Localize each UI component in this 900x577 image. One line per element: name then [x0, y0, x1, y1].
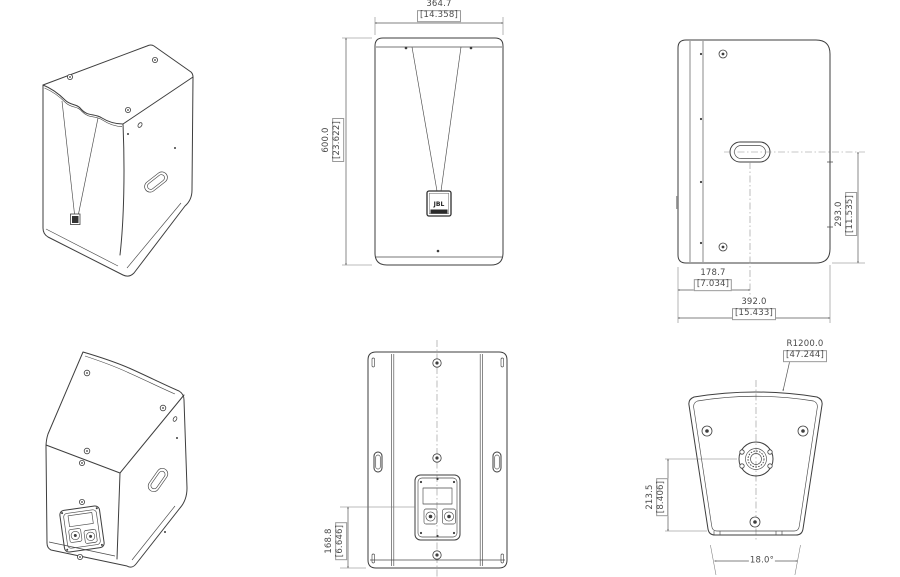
rear-connector-panel: [415, 475, 460, 540]
front-logo-badge: JBL: [427, 191, 451, 216]
side-cabinet: [677, 40, 833, 263]
dim-side-handle-height: 293.0 [11.535]: [835, 192, 857, 236]
dim-bottom-wedge-angle: 18.0°: [749, 556, 775, 565]
dim-side-handle-height-inch: [11.535]: [846, 192, 857, 236]
dim-side-handle-setback: 178.7 [7.034]: [694, 269, 732, 291]
dim-rear-connector-height: 168.8 [6.646]: [325, 522, 347, 560]
iso-rear-screws: [77, 370, 178, 559]
dim-bottom-socket-to-rear-inch: [8.406]: [657, 478, 668, 516]
iso-rear-handle: [146, 466, 170, 494]
dim-bottom-front-radius-mm: R1200.0: [785, 340, 824, 349]
bottom-view: [630, 335, 900, 577]
iso-front-view: [15, 30, 225, 270]
dim-side-handle-height-mm: 293.0: [835, 200, 844, 227]
iso-front-screws: [67, 57, 176, 149]
bottom-screws: [702, 426, 808, 527]
dim-rear-connector-height-mm: 168.8: [325, 527, 334, 554]
front-view: JBL: [320, 0, 530, 332]
iso-front-v-grille: [62, 101, 98, 214]
dim-front-height-inch: [23.622]: [333, 118, 344, 162]
dim-rear-connector-height-inch: [6.646]: [336, 522, 347, 560]
side-view: [640, 0, 900, 332]
rear-dim-lines: [340, 507, 415, 568]
side-handle: [730, 142, 770, 162]
logo-strip: [431, 210, 448, 214]
dim-bottom-socket-to-rear: 213.5 [8.406]: [646, 478, 668, 516]
jbl-logo-text: JBL: [433, 201, 445, 208]
bottom-cabinet: [689, 392, 822, 535]
dim-front-width-inch: [14.358]: [417, 11, 461, 22]
dim-side-depth: 392.0 [15.433]: [732, 298, 776, 320]
iso-rear-view: [15, 330, 225, 577]
iso-front-handle: [142, 170, 169, 195]
dim-bottom-wedge-angle-value: 18.0°: [749, 556, 775, 565]
iso-rear-cabinet: [46, 352, 187, 567]
dim-front-height: 600.0 [23.622]: [322, 118, 344, 162]
dim-bottom-front-radius-inch: [47.244]: [783, 351, 827, 362]
iso-front-logo-badge: [71, 214, 81, 225]
dim-front-width: 364.7 [14.358]: [417, 0, 461, 22]
iso-front-cabinet: [43, 45, 193, 276]
dim-bottom-front-radius: R1200.0 [47.244]: [783, 340, 827, 362]
dim-bottom-socket-to-rear-mm: 213.5: [646, 483, 655, 510]
dim-front-width-mm: 364.7: [425, 0, 452, 9]
dim-side-depth-mm: 392.0: [740, 298, 767, 307]
dim-side-handle-setback-inch: [7.034]: [694, 280, 732, 291]
rear-view: [320, 335, 530, 577]
technical-drawing-sheet: JBL: [0, 0, 900, 577]
dim-front-height-mm: 600.0: [322, 126, 331, 153]
front-cabinet: [375, 38, 503, 265]
dim-side-depth-inch: [15.433]: [732, 309, 776, 320]
front-dim-lines: [342, 17, 503, 265]
dim-side-handle-setback-mm: 178.7: [699, 269, 726, 278]
